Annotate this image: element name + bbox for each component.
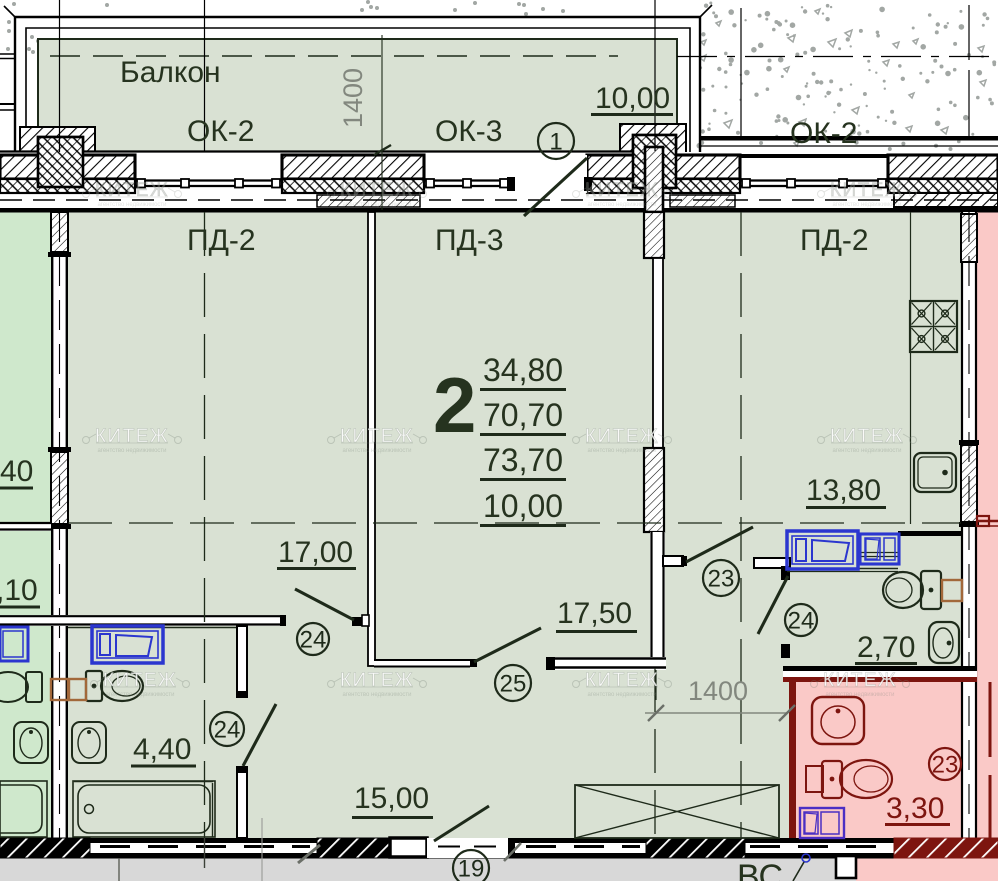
- svg-text:24: 24: [788, 607, 815, 634]
- svg-text:15,00: 15,00: [354, 782, 429, 815]
- svg-text:ВС: ВС: [737, 858, 783, 881]
- svg-text:агентство недвижимости: агентство недвижимости: [105, 692, 174, 698]
- svg-text:КИТЕЖ: КИТЕЖ: [340, 180, 414, 201]
- svg-text:25: 25: [500, 670, 527, 697]
- svg-text:2: 2: [433, 361, 476, 449]
- svg-text:агентство недвижимости: агентство недвижимости: [825, 692, 894, 698]
- svg-text:ОК-2: ОК-2: [187, 115, 255, 148]
- svg-text:Балкон: Балкон: [120, 56, 221, 89]
- svg-text:2,70: 2,70: [857, 631, 915, 664]
- svg-text:1400: 1400: [688, 676, 748, 706]
- svg-text:,10: ,10: [0, 574, 38, 607]
- svg-text:КИТЕЖ: КИТЕЖ: [340, 670, 414, 691]
- svg-text:19: 19: [458, 855, 485, 881]
- svg-text:70,70: 70,70: [483, 397, 563, 433]
- svg-text:агентство недвижимости: агентство недвижимости: [832, 202, 901, 208]
- svg-text:ПД-2: ПД-2: [187, 224, 256, 257]
- svg-text:агентство недвижимости: агентство недвижимости: [97, 448, 166, 454]
- svg-text:КИТЕЖ: КИТЕЖ: [585, 180, 659, 201]
- svg-text:3,30: 3,30: [886, 792, 944, 825]
- svg-text:10,00: 10,00: [595, 82, 670, 115]
- svg-text:агентство недвижимости: агентство недвижимости: [832, 448, 901, 454]
- svg-text:17,00: 17,00: [278, 536, 353, 569]
- svg-text:агентство недвижимости: агентство недвижимости: [342, 692, 411, 698]
- svg-text:КИТЕЖ: КИТЕЖ: [830, 180, 904, 201]
- svg-text:1400: 1400: [338, 68, 368, 128]
- svg-text:агентство недвижимости: агентство недвижимости: [97, 202, 166, 208]
- svg-text:13,80: 13,80: [806, 474, 881, 507]
- svg-text:1: 1: [549, 128, 562, 155]
- svg-text:агентство недвижимости: агентство недвижимости: [587, 448, 656, 454]
- svg-text:КИТЕЖ: КИТЕЖ: [95, 426, 169, 447]
- svg-text:КИТЕЖ: КИТЕЖ: [585, 426, 659, 447]
- svg-text:агентство недвижимости: агентство недвижимости: [587, 692, 656, 698]
- svg-text:10,00: 10,00: [483, 488, 563, 524]
- svg-text:17,50: 17,50: [557, 597, 632, 630]
- svg-text:23: 23: [932, 751, 959, 778]
- svg-text:4,40: 4,40: [133, 733, 191, 766]
- svg-text:40: 40: [0, 455, 33, 488]
- svg-text:ОК-3: ОК-3: [435, 115, 503, 148]
- svg-text:24: 24: [214, 716, 241, 743]
- svg-text:24: 24: [300, 626, 327, 653]
- svg-text:73,70: 73,70: [483, 442, 563, 478]
- svg-text:КИТЕЖ: КИТЕЖ: [95, 180, 169, 201]
- svg-text:ОК-2: ОК-2: [790, 117, 858, 150]
- svg-text:КИТЕЖ: КИТЕЖ: [830, 426, 904, 447]
- svg-text:агентство недвижимости: агентство недвижимости: [342, 202, 411, 208]
- svg-text:34,80: 34,80: [483, 352, 563, 388]
- svg-text:КИТЕЖ: КИТЕЖ: [103, 670, 177, 691]
- svg-text:агентство недвижимости: агентство недвижимости: [342, 448, 411, 454]
- svg-text:КИТЕЖ: КИТЕЖ: [585, 670, 659, 691]
- svg-text:КИТЕЖ: КИТЕЖ: [823, 670, 897, 691]
- svg-text:ПД-2: ПД-2: [800, 224, 869, 257]
- svg-text:23: 23: [708, 565, 735, 592]
- svg-text:агентство недвижимости: агентство недвижимости: [587, 202, 656, 208]
- svg-text:ПД-3: ПД-3: [435, 224, 504, 257]
- svg-text:КИТЕЖ: КИТЕЖ: [340, 426, 414, 447]
